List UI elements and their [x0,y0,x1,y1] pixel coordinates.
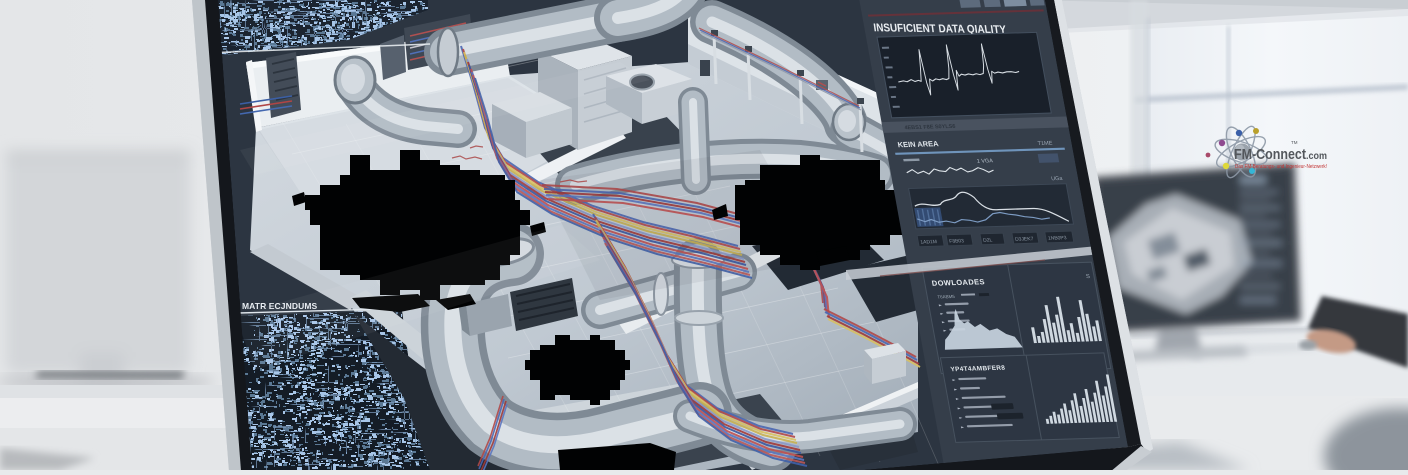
svg-text:1NB0P3: 1NB0P3 [1048,235,1068,241]
svg-text:Das FM-Beratungs- und Ingenieu: Das FM-Beratungs- und Ingenieur-Netzwerk… [1235,164,1327,170]
svg-text:D3JEK7: D3JEK7 [1015,236,1035,242]
svg-text:D2L: D2L [983,237,993,243]
svg-text:T1ME: T1ME [1037,141,1053,147]
svg-text:1 VGA: 1 VGA [976,158,994,164]
svg-text:F8B03: F8B03 [949,238,965,244]
svg-text:.com: .com [1306,151,1327,162]
svg-text:TM: TM [1291,140,1298,145]
svg-text:DOWLOADES: DOWLOADES [931,277,986,287]
svg-text:FM-Connect: FM-Connect [1234,146,1306,163]
svg-text:T6ABM5: T6ABM5 [937,294,956,299]
svg-text:UGa: UGa [1051,176,1064,182]
svg-text:1AD1M: 1AD1M [920,239,938,245]
svg-text:KEIN AREA: KEIN AREA [897,139,940,149]
